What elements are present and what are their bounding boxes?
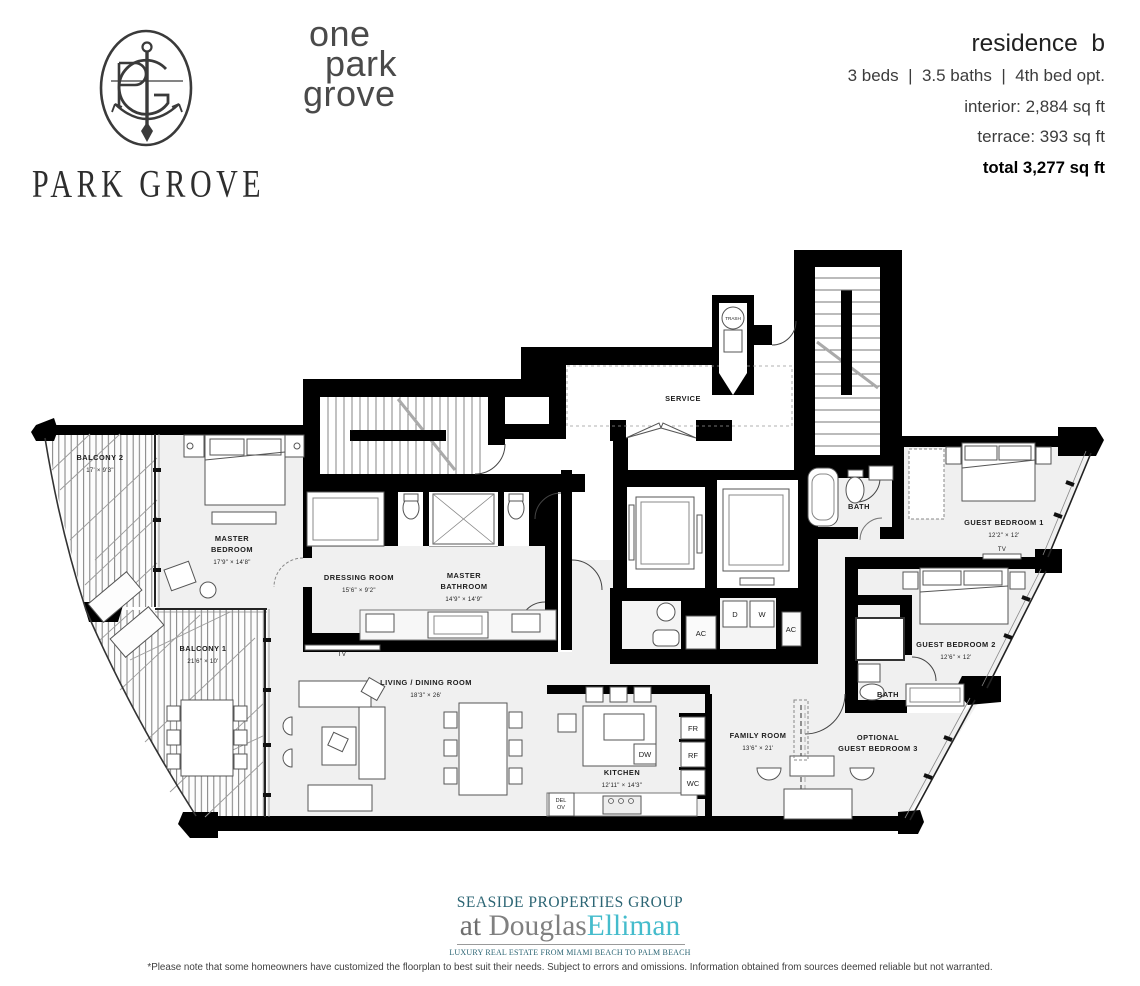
svg-text:BALCONY 2: BALCONY 2 (76, 453, 123, 462)
svg-text:FAMILY ROOM: FAMILY ROOM (730, 731, 787, 740)
svg-text:12'11" × 14'3": 12'11" × 14'3" (602, 783, 643, 789)
svg-text:17' × 9'3": 17' × 9'3" (86, 468, 114, 474)
svg-text:AC: AC (786, 625, 797, 634)
svg-text:FR: FR (688, 724, 699, 733)
svg-text:BATH: BATH (877, 690, 899, 699)
svg-text:DEL: DEL (556, 798, 567, 804)
svg-text:RF: RF (688, 751, 698, 760)
svg-text:12'6" × 12': 12'6" × 12' (940, 655, 971, 661)
svg-text:SERVICE: SERVICE (665, 394, 701, 403)
svg-text:17'9" × 14'8": 17'9" × 14'8" (213, 560, 250, 566)
svg-text:OPTIONAL: OPTIONAL (857, 733, 899, 742)
svg-text:KITCHEN: KITCHEN (604, 768, 640, 777)
svg-text:OV: OV (557, 805, 565, 811)
svg-text:MASTER: MASTER (447, 571, 481, 580)
svg-text:LIVING / DINING ROOM: LIVING / DINING ROOM (380, 678, 472, 687)
svg-text:15'6" × 9'2": 15'6" × 9'2" (342, 588, 376, 594)
svg-text:TV: TV (338, 652, 346, 658)
svg-text:TV: TV (998, 547, 1006, 553)
svg-text:18'3" × 26': 18'3" × 26' (410, 693, 441, 699)
svg-text:TRASH: TRASH (725, 316, 741, 321)
svg-text:GUEST BEDROOM 1: GUEST BEDROOM 1 (964, 518, 1044, 527)
svg-text:D: D (732, 610, 738, 619)
svg-text:21'6" × 10': 21'6" × 10' (187, 659, 218, 665)
svg-text:BATHROOM: BATHROOM (441, 582, 488, 591)
svg-text:W: W (758, 610, 766, 619)
svg-text:AC: AC (696, 629, 707, 638)
svg-text:BEDROOM: BEDROOM (211, 545, 253, 554)
svg-text:DRESSING ROOM: DRESSING ROOM (324, 573, 394, 582)
svg-text:13'6" × 21': 13'6" × 21' (742, 746, 773, 752)
svg-text:BALCONY 1: BALCONY 1 (179, 644, 226, 653)
svg-text:BATH: BATH (848, 502, 870, 511)
svg-text:MASTER: MASTER (215, 534, 249, 543)
svg-text:WC: WC (687, 779, 700, 788)
svg-text:12'2" × 12': 12'2" × 12' (988, 533, 1019, 539)
svg-text:GUEST BEDROOM 3: GUEST BEDROOM 3 (838, 744, 918, 753)
svg-text:DW: DW (639, 750, 652, 759)
svg-text:GUEST BEDROOM 2: GUEST BEDROOM 2 (916, 640, 996, 649)
svg-text:14'9" × 14'9": 14'9" × 14'9" (445, 597, 482, 603)
